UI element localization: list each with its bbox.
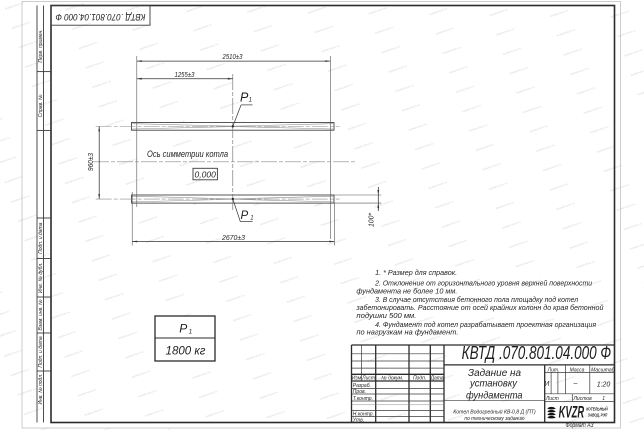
svg-text:Т.контр.: Т.контр. <box>353 396 373 402</box>
svg-text:2. Отклонение от горизонтально: 2. Отклонение от горизонтального уровня … <box>374 280 592 288</box>
svg-text:–: – <box>573 381 578 388</box>
svg-text:1: 1 <box>250 215 253 221</box>
svg-text:Подп.: Подп. <box>413 375 426 381</box>
svg-text:1: 1 <box>602 396 605 402</box>
svg-text:Р: Р <box>179 321 187 335</box>
svg-text:Листов: Листов <box>572 396 592 402</box>
svg-text:Справ. №: Справ. № <box>38 94 44 117</box>
svg-text:КВТД .070.801.04.000 Ф: КВТД .070.801.04.000 Ф <box>55 11 145 22</box>
svg-text:КВТД .070.801.04.000 Ф: КВТД .070.801.04.000 Ф <box>462 343 612 363</box>
svg-text:4. Фундамент под котел разраба: 4. Фундамент под котел разрабатывает про… <box>375 321 596 329</box>
svg-text:Лист: Лист <box>545 396 559 402</box>
svg-text:Взам. инв. №: Взам. инв. № <box>38 299 44 331</box>
svg-text:по техническому заданию: по техническому заданию <box>464 416 524 422</box>
svg-text:Подп. и дата: Подп. и дата <box>38 336 44 368</box>
svg-text:1800 кг: 1800 кг <box>166 346 206 358</box>
svg-text:1255±3: 1255±3 <box>175 72 195 79</box>
svg-text:№ докум.: № докум. <box>381 375 403 381</box>
svg-text:Лит.: Лит. <box>547 367 560 373</box>
svg-text:Подп. и дата: Подп. и дата <box>38 222 44 254</box>
svg-text:Лист: Лист <box>361 375 375 381</box>
svg-text:Дата: Дата <box>429 375 443 381</box>
svg-text:1. * Размер для справок.: 1. * Размер для справок. <box>375 269 457 277</box>
svg-text:ЗАВОД, РЭП: ЗАВОД, РЭП <box>588 413 608 418</box>
svg-text:фундамента: фундамента <box>466 390 523 402</box>
svg-text:960±3: 960±3 <box>88 153 95 171</box>
svg-text:0,000: 0,000 <box>195 169 217 179</box>
svg-text:Р: Р <box>241 210 249 222</box>
svg-text:Масса: Масса <box>570 367 585 373</box>
svg-text:по нагрузкам на фундамент.: по нагрузкам на фундамент. <box>356 329 458 337</box>
svg-text:забетонировать. Расстояние от: забетонировать. Расстояние от осей крайн… <box>355 304 603 312</box>
svg-text:Масштаб: Масштаб <box>591 367 615 373</box>
svg-text:Котел Водогрейный КВ-0,8 Д (: Котел Водогрейный КВ-0,8 Д (ПТ) <box>453 408 536 415</box>
svg-text:2670±3: 2670±3 <box>221 235 245 242</box>
svg-text:3. В случае отсутствия бетонно: 3. В случае отсутствия бетонного пола пл… <box>375 296 578 304</box>
svg-text:Формат А3: Формат А3 <box>566 422 594 429</box>
svg-text:Перв. примен.: Перв. примен. <box>38 29 44 62</box>
svg-text:Ось симметрии котла: Ось симметрии котла <box>147 149 228 160</box>
svg-text:KVZR: KVZR <box>559 404 585 422</box>
svg-text:100*: 100* <box>368 213 375 227</box>
svg-text:Инв. № дубл.: Инв. № дубл. <box>38 262 44 293</box>
svg-text:фундамента не более 10 мм.: фундамента не более 10 мм. <box>356 288 457 296</box>
svg-text:Инв. № подл.: Инв. № подл. <box>38 373 44 404</box>
svg-text:Пров.: Пров. <box>353 389 366 395</box>
svg-text:1: 1 <box>249 97 252 103</box>
svg-text:Изм: Изм <box>352 375 362 381</box>
svg-text:подушки 500 мм.: подушки 500 мм. <box>356 312 416 320</box>
svg-text:Утв.: Утв. <box>353 418 364 424</box>
svg-text:1:20: 1:20 <box>597 382 611 389</box>
svg-text:установку: установку <box>469 378 518 390</box>
svg-text:1: 1 <box>189 329 193 336</box>
svg-text:2510±3: 2510±3 <box>222 54 243 61</box>
svg-text:КОТЕЛЬНЫЙ: КОТЕЛЬНЫЙ <box>586 405 608 412</box>
